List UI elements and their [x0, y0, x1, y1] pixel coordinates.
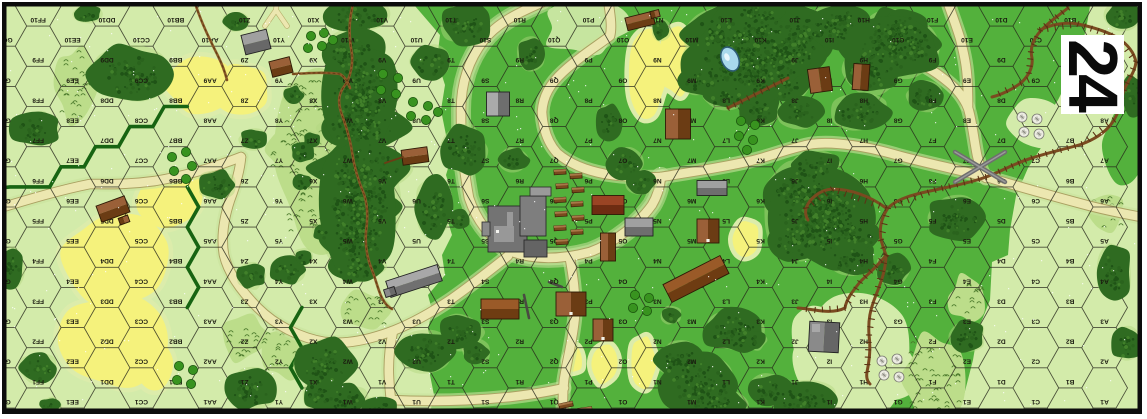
svg-text:DD3: DD3	[100, 297, 114, 304]
svg-text:L1: L1	[722, 378, 730, 385]
svg-text:EE2: EE2	[66, 358, 79, 365]
svg-text:E9: E9	[963, 76, 971, 83]
svg-text:X1: X1	[309, 378, 317, 385]
svg-text:B3: B3	[1066, 297, 1075, 304]
svg-text:B5: B5	[1066, 217, 1075, 224]
svg-text:B2: B2	[1066, 338, 1075, 345]
svg-text:I2: I2	[826, 358, 832, 365]
svg-text:DD8: DD8	[100, 96, 114, 103]
svg-text:B4: B4	[1066, 257, 1075, 264]
svg-text:AA9: AA9	[203, 76, 217, 83]
svg-text:C5: C5	[1031, 237, 1040, 244]
svg-text:Z3: Z3	[240, 297, 248, 304]
svg-text:F8: F8	[928, 96, 936, 103]
svg-text:Q7: Q7	[549, 157, 558, 164]
svg-text:D8: D8	[997, 96, 1006, 103]
svg-text:V1: V1	[378, 378, 386, 385]
svg-text:L8: L8	[722, 96, 730, 103]
svg-text:CC7: CC7	[134, 157, 148, 164]
svg-text:V7: V7	[378, 137, 386, 144]
svg-text:CC1: CC1	[134, 398, 148, 405]
svg-text:A8: A8	[1100, 117, 1109, 124]
svg-text:Y6: Y6	[275, 197, 283, 204]
svg-text:K5: K5	[756, 237, 765, 244]
svg-text:K10: K10	[754, 36, 766, 43]
svg-text:V8: V8	[378, 96, 386, 103]
svg-text:I5: I5	[826, 237, 832, 244]
svg-text:Z1: Z1	[240, 378, 248, 385]
svg-text:W1: W1	[343, 398, 353, 405]
svg-text:O10: O10	[616, 36, 629, 43]
svg-text:FF10: FF10	[30, 16, 46, 23]
svg-text:J9: J9	[791, 56, 799, 63]
svg-text:E8: E8	[963, 117, 971, 124]
svg-text:Q9: Q9	[549, 76, 558, 83]
svg-text:G7: G7	[893, 157, 902, 164]
svg-text:E2: E2	[963, 358, 971, 365]
svg-text:X4: X4	[309, 257, 317, 264]
svg-text:CC10: CC10	[133, 36, 150, 43]
svg-text:I10: I10	[824, 36, 833, 43]
svg-text:C1: C1	[1031, 398, 1040, 405]
svg-text:Y10: Y10	[273, 36, 285, 43]
svg-text:O9: O9	[618, 76, 627, 83]
svg-text:BB4: BB4	[169, 257, 183, 264]
svg-text:J3: J3	[791, 297, 799, 304]
svg-text:X10: X10	[307, 16, 319, 23]
svg-text:AA7: AA7	[203, 157, 217, 164]
svg-text:U3: U3	[412, 318, 421, 325]
svg-text:DD7: DD7	[100, 137, 114, 144]
svg-text:G9: G9	[893, 76, 902, 83]
svg-text:E4: E4	[963, 277, 971, 284]
svg-text:S6: S6	[481, 197, 489, 204]
svg-text:U9: U9	[412, 76, 421, 83]
svg-text:W10: W10	[341, 36, 355, 43]
svg-text:A6: A6	[1100, 197, 1109, 204]
svg-text:M2: M2	[687, 358, 696, 365]
svg-text:T5: T5	[447, 217, 455, 224]
svg-text:BB10: BB10	[167, 16, 184, 23]
svg-text:H9: H9	[859, 56, 868, 63]
svg-text:I4: I4	[826, 277, 832, 284]
svg-text:P9: P9	[584, 56, 592, 63]
svg-text:N2: N2	[653, 338, 662, 345]
svg-text:U5: U5	[412, 237, 421, 244]
svg-text:N9: N9	[653, 56, 662, 63]
svg-text:O3: O3	[618, 318, 627, 325]
svg-text:I8: I8	[826, 117, 832, 124]
svg-text:EE10: EE10	[64, 36, 80, 43]
svg-text:V9: V9	[378, 56, 386, 63]
svg-text:R8: R8	[515, 96, 524, 103]
svg-text:AA2: AA2	[203, 358, 217, 365]
svg-text:P1: P1	[584, 378, 592, 385]
svg-text:J2: J2	[791, 338, 799, 345]
svg-text:I6: I6	[826, 197, 832, 204]
svg-text:X9: X9	[309, 56, 317, 63]
svg-text:EE6: EE6	[66, 197, 79, 204]
svg-text:CC8: CC8	[134, 117, 148, 124]
svg-text:CC3: CC3	[134, 318, 148, 325]
svg-text:B6: B6	[1066, 177, 1075, 184]
svg-text:M9: M9	[687, 76, 696, 83]
svg-text:FF5: FF5	[32, 217, 44, 224]
svg-text:G4: G4	[893, 277, 902, 284]
svg-text:N8: N8	[653, 96, 662, 103]
svg-text:J8: J8	[791, 96, 799, 103]
svg-text:AA3: AA3	[203, 318, 217, 325]
svg-text:L3: L3	[722, 297, 730, 304]
svg-text:O7: O7	[618, 157, 627, 164]
svg-text:DD4: DD4	[100, 257, 114, 264]
svg-text:U10: U10	[410, 36, 422, 43]
svg-text:Z6: Z6	[240, 177, 248, 184]
svg-text:X7: X7	[309, 137, 317, 144]
svg-text:N6: N6	[653, 177, 662, 184]
svg-text:EE1: EE1	[66, 398, 79, 405]
svg-text:S8: S8	[481, 117, 489, 124]
svg-text:A1: A1	[1100, 398, 1109, 405]
svg-text:F9: F9	[928, 56, 936, 63]
svg-text:J5: J5	[791, 217, 799, 224]
svg-text:Y1: Y1	[275, 398, 283, 405]
svg-text:Z8: Z8	[240, 96, 248, 103]
svg-text:FF2: FF2	[32, 338, 44, 345]
svg-text:U2: U2	[412, 358, 421, 365]
svg-text:R2: R2	[515, 338, 524, 345]
svg-text:A7: A7	[1100, 157, 1109, 164]
svg-text:FF9: FF9	[32, 56, 44, 63]
svg-text:BB9: BB9	[169, 56, 183, 63]
svg-text:AA5: AA5	[203, 237, 217, 244]
svg-text:FF6: FF6	[32, 177, 44, 184]
svg-text:R6: R6	[515, 177, 524, 184]
svg-text:K6: K6	[756, 197, 765, 204]
svg-text:N4: N4	[653, 257, 662, 264]
svg-text:D3: D3	[997, 297, 1006, 304]
svg-text:X3: X3	[309, 297, 317, 304]
svg-text:U1: U1	[412, 398, 421, 405]
svg-text:BB8: BB8	[169, 96, 183, 103]
svg-text:P5: P5	[584, 217, 592, 224]
svg-text:D5: D5	[997, 217, 1006, 224]
svg-text:G10: G10	[892, 36, 905, 43]
svg-text:Z7: Z7	[240, 137, 248, 144]
svg-text:K1: K1	[756, 398, 765, 405]
svg-text:E10: E10	[961, 36, 973, 43]
svg-text:W4: W4	[343, 277, 353, 284]
svg-text:C3: C3	[1031, 318, 1040, 325]
svg-text:EE7: EE7	[66, 157, 79, 164]
svg-text:Q8: Q8	[549, 117, 558, 124]
svg-text:T6: T6	[447, 177, 455, 184]
svg-text:FF3: FF3	[32, 297, 44, 304]
svg-text:AA6: AA6	[203, 197, 217, 204]
svg-text:Y2: Y2	[275, 358, 283, 365]
svg-text:S7: S7	[481, 157, 489, 164]
svg-text:H2: H2	[859, 338, 868, 345]
svg-text:G1: G1	[893, 398, 902, 405]
svg-text:V5: V5	[378, 217, 386, 224]
svg-text:H6: H6	[859, 177, 868, 184]
svg-text:D10: D10	[995, 16, 1007, 23]
svg-text:Q4: Q4	[549, 277, 558, 284]
svg-text:S4: S4	[481, 277, 489, 284]
svg-text:P7: P7	[584, 137, 592, 144]
svg-text:FF7: FF7	[32, 137, 44, 144]
svg-text:K3: K3	[756, 318, 765, 325]
svg-text:BB7: BB7	[169, 137, 183, 144]
svg-text:P4: P4	[584, 257, 592, 264]
svg-text:AA1: AA1	[203, 398, 217, 405]
svg-text:A3: A3	[1100, 318, 1109, 325]
svg-text:X6: X6	[309, 177, 317, 184]
svg-text:C4: C4	[1031, 277, 1040, 284]
svg-text:E1: E1	[963, 398, 971, 405]
svg-text:R10: R10	[513, 16, 525, 23]
svg-text:M5: M5	[687, 237, 696, 244]
svg-text:F5: F5	[928, 217, 936, 224]
svg-text:BB3: BB3	[169, 297, 183, 304]
svg-text:E5: E5	[963, 237, 971, 244]
svg-text:DD1: DD1	[100, 378, 114, 385]
svg-text:W6: W6	[343, 197, 353, 204]
svg-text:L10: L10	[720, 16, 732, 23]
svg-text:E3: E3	[963, 318, 971, 325]
svg-text:J7: J7	[791, 137, 799, 144]
svg-text:H5: H5	[859, 217, 868, 224]
svg-text:D1: D1	[997, 378, 1006, 385]
svg-text:W2: W2	[343, 358, 353, 365]
svg-text:P2: P2	[584, 338, 592, 345]
svg-text:C6: C6	[1031, 197, 1040, 204]
svg-text:G8: G8	[893, 117, 902, 124]
svg-text:P8: P8	[584, 96, 592, 103]
svg-text:BB5: BB5	[169, 217, 183, 224]
svg-text:V10: V10	[376, 16, 388, 23]
svg-text:L2: L2	[722, 338, 730, 345]
svg-text:T4: T4	[447, 257, 455, 264]
svg-text:T8: T8	[447, 96, 455, 103]
svg-text:M10: M10	[685, 36, 698, 43]
svg-text:R7: R7	[515, 137, 524, 144]
svg-text:BB2: BB2	[169, 338, 183, 345]
svg-text:Y4: Y4	[275, 277, 283, 284]
svg-text:K4: K4	[756, 277, 765, 284]
svg-text:O2: O2	[618, 358, 627, 365]
svg-text:EE4: EE4	[66, 277, 79, 284]
svg-text:F1: F1	[928, 378, 936, 385]
svg-text:X2: X2	[309, 338, 317, 345]
svg-text:L5: L5	[722, 217, 730, 224]
svg-text:M1: M1	[687, 398, 696, 405]
svg-text:24: 24	[1054, 39, 1132, 113]
svg-text:CC6: CC6	[134, 197, 148, 204]
svg-text:J4: J4	[791, 257, 799, 264]
svg-text:D4: D4	[997, 257, 1006, 264]
svg-text:EE8: EE8	[66, 117, 79, 124]
svg-text:T10: T10	[445, 16, 457, 23]
svg-text:Z9: Z9	[240, 56, 248, 63]
svg-text:FF8: FF8	[32, 96, 44, 103]
svg-text:T2: T2	[447, 338, 455, 345]
svg-text:CC5: CC5	[134, 237, 148, 244]
svg-text:Y3: Y3	[275, 318, 283, 325]
svg-text:DD6: DD6	[100, 177, 114, 184]
svg-text:Z4: Z4	[240, 257, 248, 264]
svg-text:O1: O1	[618, 398, 627, 405]
svg-text:F2: F2	[928, 338, 936, 345]
svg-text:BB6: BB6	[169, 177, 183, 184]
svg-text:R1: R1	[515, 378, 524, 385]
svg-text:H7: H7	[859, 137, 868, 144]
svg-text:CC9: CC9	[134, 76, 148, 83]
svg-text:V2: V2	[378, 338, 386, 345]
svg-text:R9: R9	[515, 56, 524, 63]
svg-text:Y7: Y7	[275, 157, 283, 164]
svg-text:F3: F3	[928, 297, 936, 304]
svg-text:AA8: AA8	[203, 117, 217, 124]
svg-text:Z5: Z5	[240, 217, 248, 224]
svg-text:B7: B7	[1066, 137, 1075, 144]
svg-text:CC2: CC2	[134, 358, 148, 365]
svg-text:Q1: Q1	[549, 398, 558, 405]
svg-text:H8: H8	[859, 96, 868, 103]
svg-text:N7: N7	[653, 137, 662, 144]
svg-text:T3: T3	[447, 297, 455, 304]
svg-text:T9: T9	[447, 56, 455, 63]
svg-text:EE5: EE5	[66, 237, 79, 244]
svg-text:Z10: Z10	[239, 16, 251, 23]
svg-text:Y8: Y8	[275, 117, 283, 124]
svg-text:P6: P6	[584, 177, 592, 184]
svg-text:N5: N5	[653, 217, 662, 224]
svg-text:K2: K2	[756, 358, 765, 365]
svg-text:D9: D9	[997, 56, 1006, 63]
svg-text:D7: D7	[997, 137, 1006, 144]
svg-text:C2: C2	[1031, 358, 1040, 365]
svg-text:Y9: Y9	[275, 76, 283, 83]
svg-text:W7: W7	[343, 157, 353, 164]
svg-text:C9: C9	[1031, 76, 1040, 83]
svg-text:W3: W3	[343, 318, 353, 325]
svg-text:J10: J10	[789, 16, 800, 23]
svg-text:H10: H10	[857, 16, 869, 23]
svg-text:K9: K9	[756, 76, 765, 83]
svg-text:E6: E6	[963, 197, 971, 204]
svg-text:G3: G3	[893, 318, 902, 325]
svg-text:L7: L7	[722, 137, 730, 144]
svg-text:X8: X8	[309, 96, 317, 103]
svg-text:X5: X5	[309, 217, 317, 224]
svg-text:U6: U6	[412, 197, 421, 204]
svg-text:A2: A2	[1100, 358, 1109, 365]
svg-text:EE9: EE9	[66, 76, 79, 83]
svg-text:G5: G5	[893, 237, 902, 244]
svg-text:V6: V6	[378, 177, 386, 184]
svg-text:B1: B1	[1066, 378, 1075, 385]
svg-text:F6: F6	[928, 177, 936, 184]
svg-text:O4: O4	[618, 277, 627, 284]
svg-text:V4: V4	[378, 257, 386, 264]
svg-text:S10: S10	[479, 36, 491, 43]
svg-text:DD2: DD2	[100, 338, 114, 345]
svg-text:H4: H4	[859, 257, 868, 264]
svg-text:O8: O8	[618, 117, 627, 124]
svg-text:N3: N3	[653, 297, 662, 304]
svg-text:O5: O5	[618, 237, 627, 244]
svg-text:A5: A5	[1100, 237, 1109, 244]
svg-text:S2: S2	[481, 358, 489, 365]
svg-text:M7: M7	[687, 157, 696, 164]
svg-text:FF4: FF4	[32, 257, 44, 264]
svg-text:Q3: Q3	[549, 318, 558, 325]
svg-text:H3: H3	[859, 297, 868, 304]
svg-text:D2: D2	[997, 338, 1006, 345]
svg-text:CC4: CC4	[134, 277, 148, 284]
svg-text:I1: I1	[826, 398, 832, 405]
svg-text:Q10: Q10	[548, 36, 561, 43]
svg-text:FF1: FF1	[32, 378, 44, 385]
svg-text:F7: F7	[928, 137, 936, 144]
svg-text:R4: R4	[515, 257, 524, 264]
svg-text:DD9: DD9	[100, 56, 114, 63]
svg-text:F10: F10	[927, 16, 939, 23]
svg-text:AA4: AA4	[203, 277, 217, 284]
svg-text:EE3: EE3	[66, 318, 79, 325]
svg-text:M3: M3	[687, 318, 696, 325]
svg-text:S9: S9	[481, 76, 489, 83]
svg-text:J6: J6	[791, 177, 799, 184]
svg-text:M6: M6	[687, 197, 696, 204]
svg-text:Z2: Z2	[240, 338, 248, 345]
svg-text:Q2: Q2	[549, 358, 558, 365]
svg-text:DD10: DD10	[98, 16, 115, 23]
svg-text:N1: N1	[653, 378, 662, 385]
svg-text:I7: I7	[826, 157, 832, 164]
svg-text:T1: T1	[447, 378, 455, 385]
svg-text:J1: J1	[791, 378, 799, 385]
svg-text:F4: F4	[928, 257, 936, 264]
svg-text:A4: A4	[1100, 277, 1109, 284]
svg-text:W5: W5	[343, 237, 353, 244]
svg-text:P10: P10	[582, 16, 594, 23]
svg-text:S1: S1	[481, 398, 489, 405]
